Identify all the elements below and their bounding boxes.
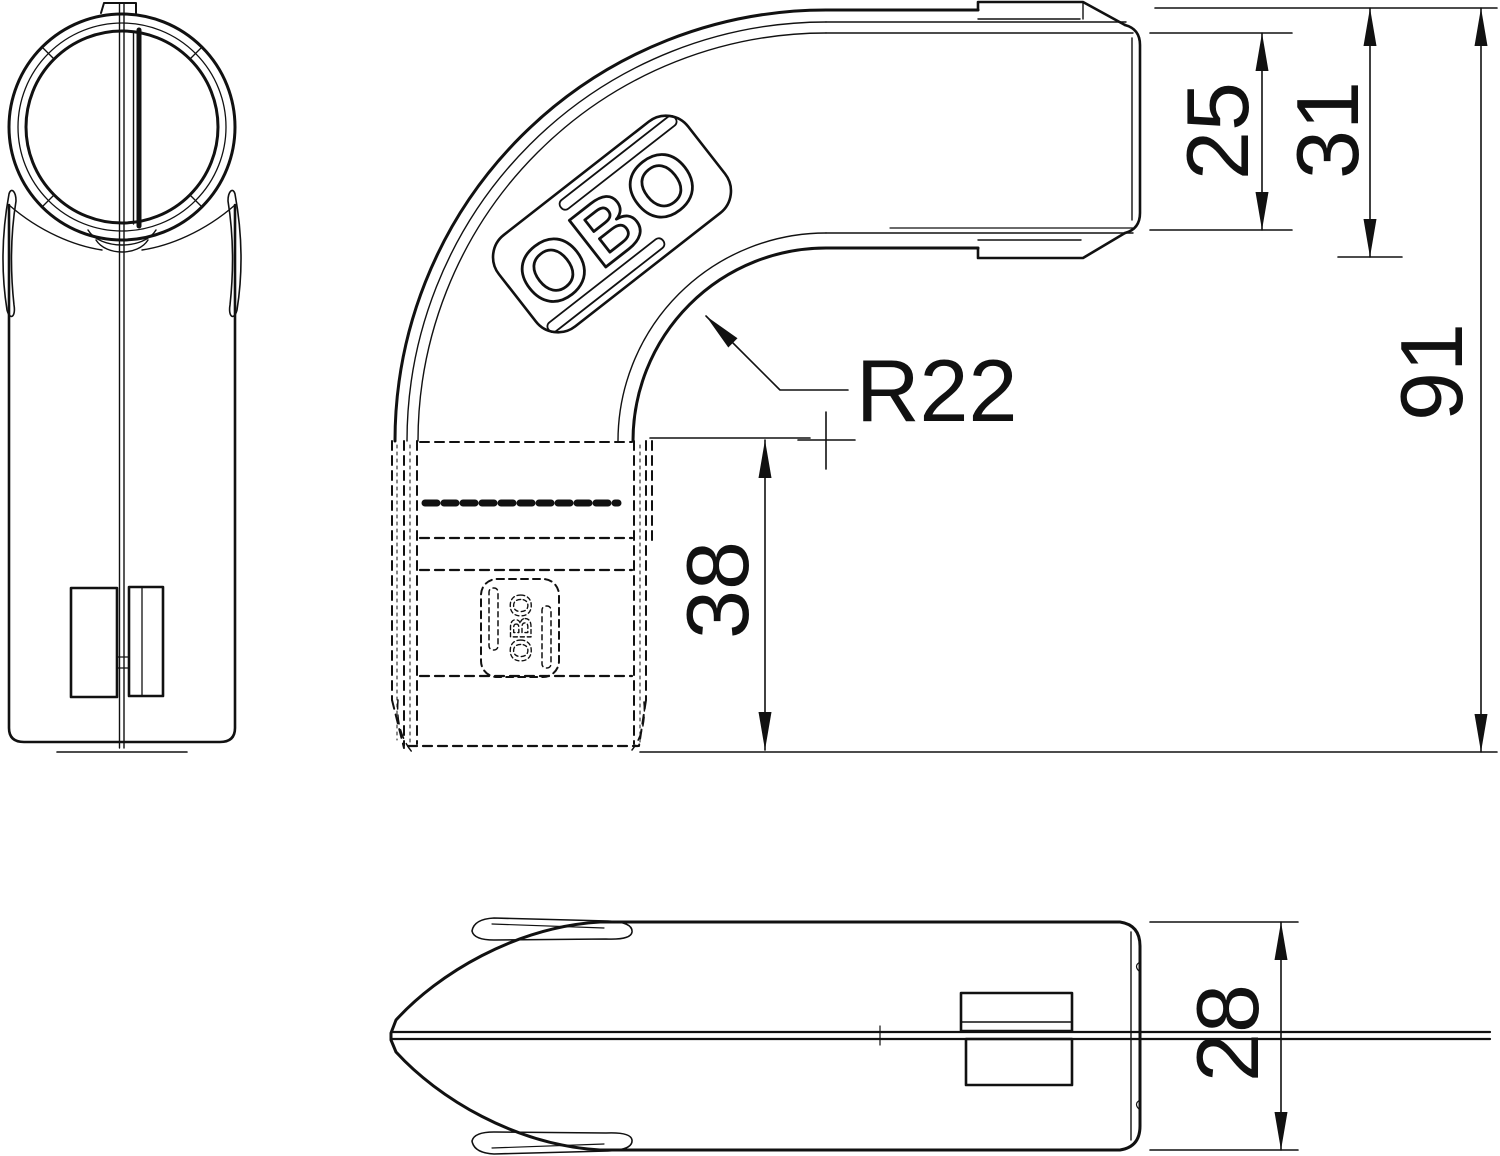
hidden-logo-text: OBO (505, 594, 538, 662)
parting-line (120, 4, 125, 748)
radius-callout-r22 (706, 316, 855, 469)
label-28: 28 (1178, 984, 1277, 1082)
hidden-logo-badge: OBO (481, 579, 559, 677)
side-view (3, 3, 241, 752)
body-outline (391, 922, 1140, 1150)
ring-ticks (42, 47, 202, 207)
technical-drawing-page: OBO OBO (0, 0, 1500, 1156)
label-r22: R22 (856, 341, 1017, 440)
latch-lower (966, 1039, 1072, 1085)
bottom-view (391, 918, 1490, 1154)
label-25: 25 (1168, 82, 1267, 180)
pipe-bend-drawing: OBO OBO (0, 0, 1500, 1156)
top-tab (101, 3, 136, 13)
slot-bottom-inner (492, 1144, 604, 1148)
label-38: 38 (668, 541, 767, 639)
label-31: 31 (1278, 81, 1377, 179)
horizontal-arm (826, 2, 1140, 258)
dimension-labels: 25 31 91 38 28 R22 (668, 81, 1481, 1082)
right-shoulder (142, 205, 235, 250)
latch-left (71, 588, 117, 697)
left-shoulder (9, 205, 102, 250)
parting-line (392, 1032, 1490, 1039)
bottom-tab (978, 233, 1125, 258)
logo-badge: OBO (482, 104, 743, 343)
pipe-opening-inner (26, 31, 218, 223)
latch-upper (961, 993, 1072, 1031)
latch-right (129, 587, 163, 696)
label-91: 91 (1382, 323, 1481, 421)
slot-top-inner (492, 924, 604, 928)
body-outline (9, 205, 235, 742)
